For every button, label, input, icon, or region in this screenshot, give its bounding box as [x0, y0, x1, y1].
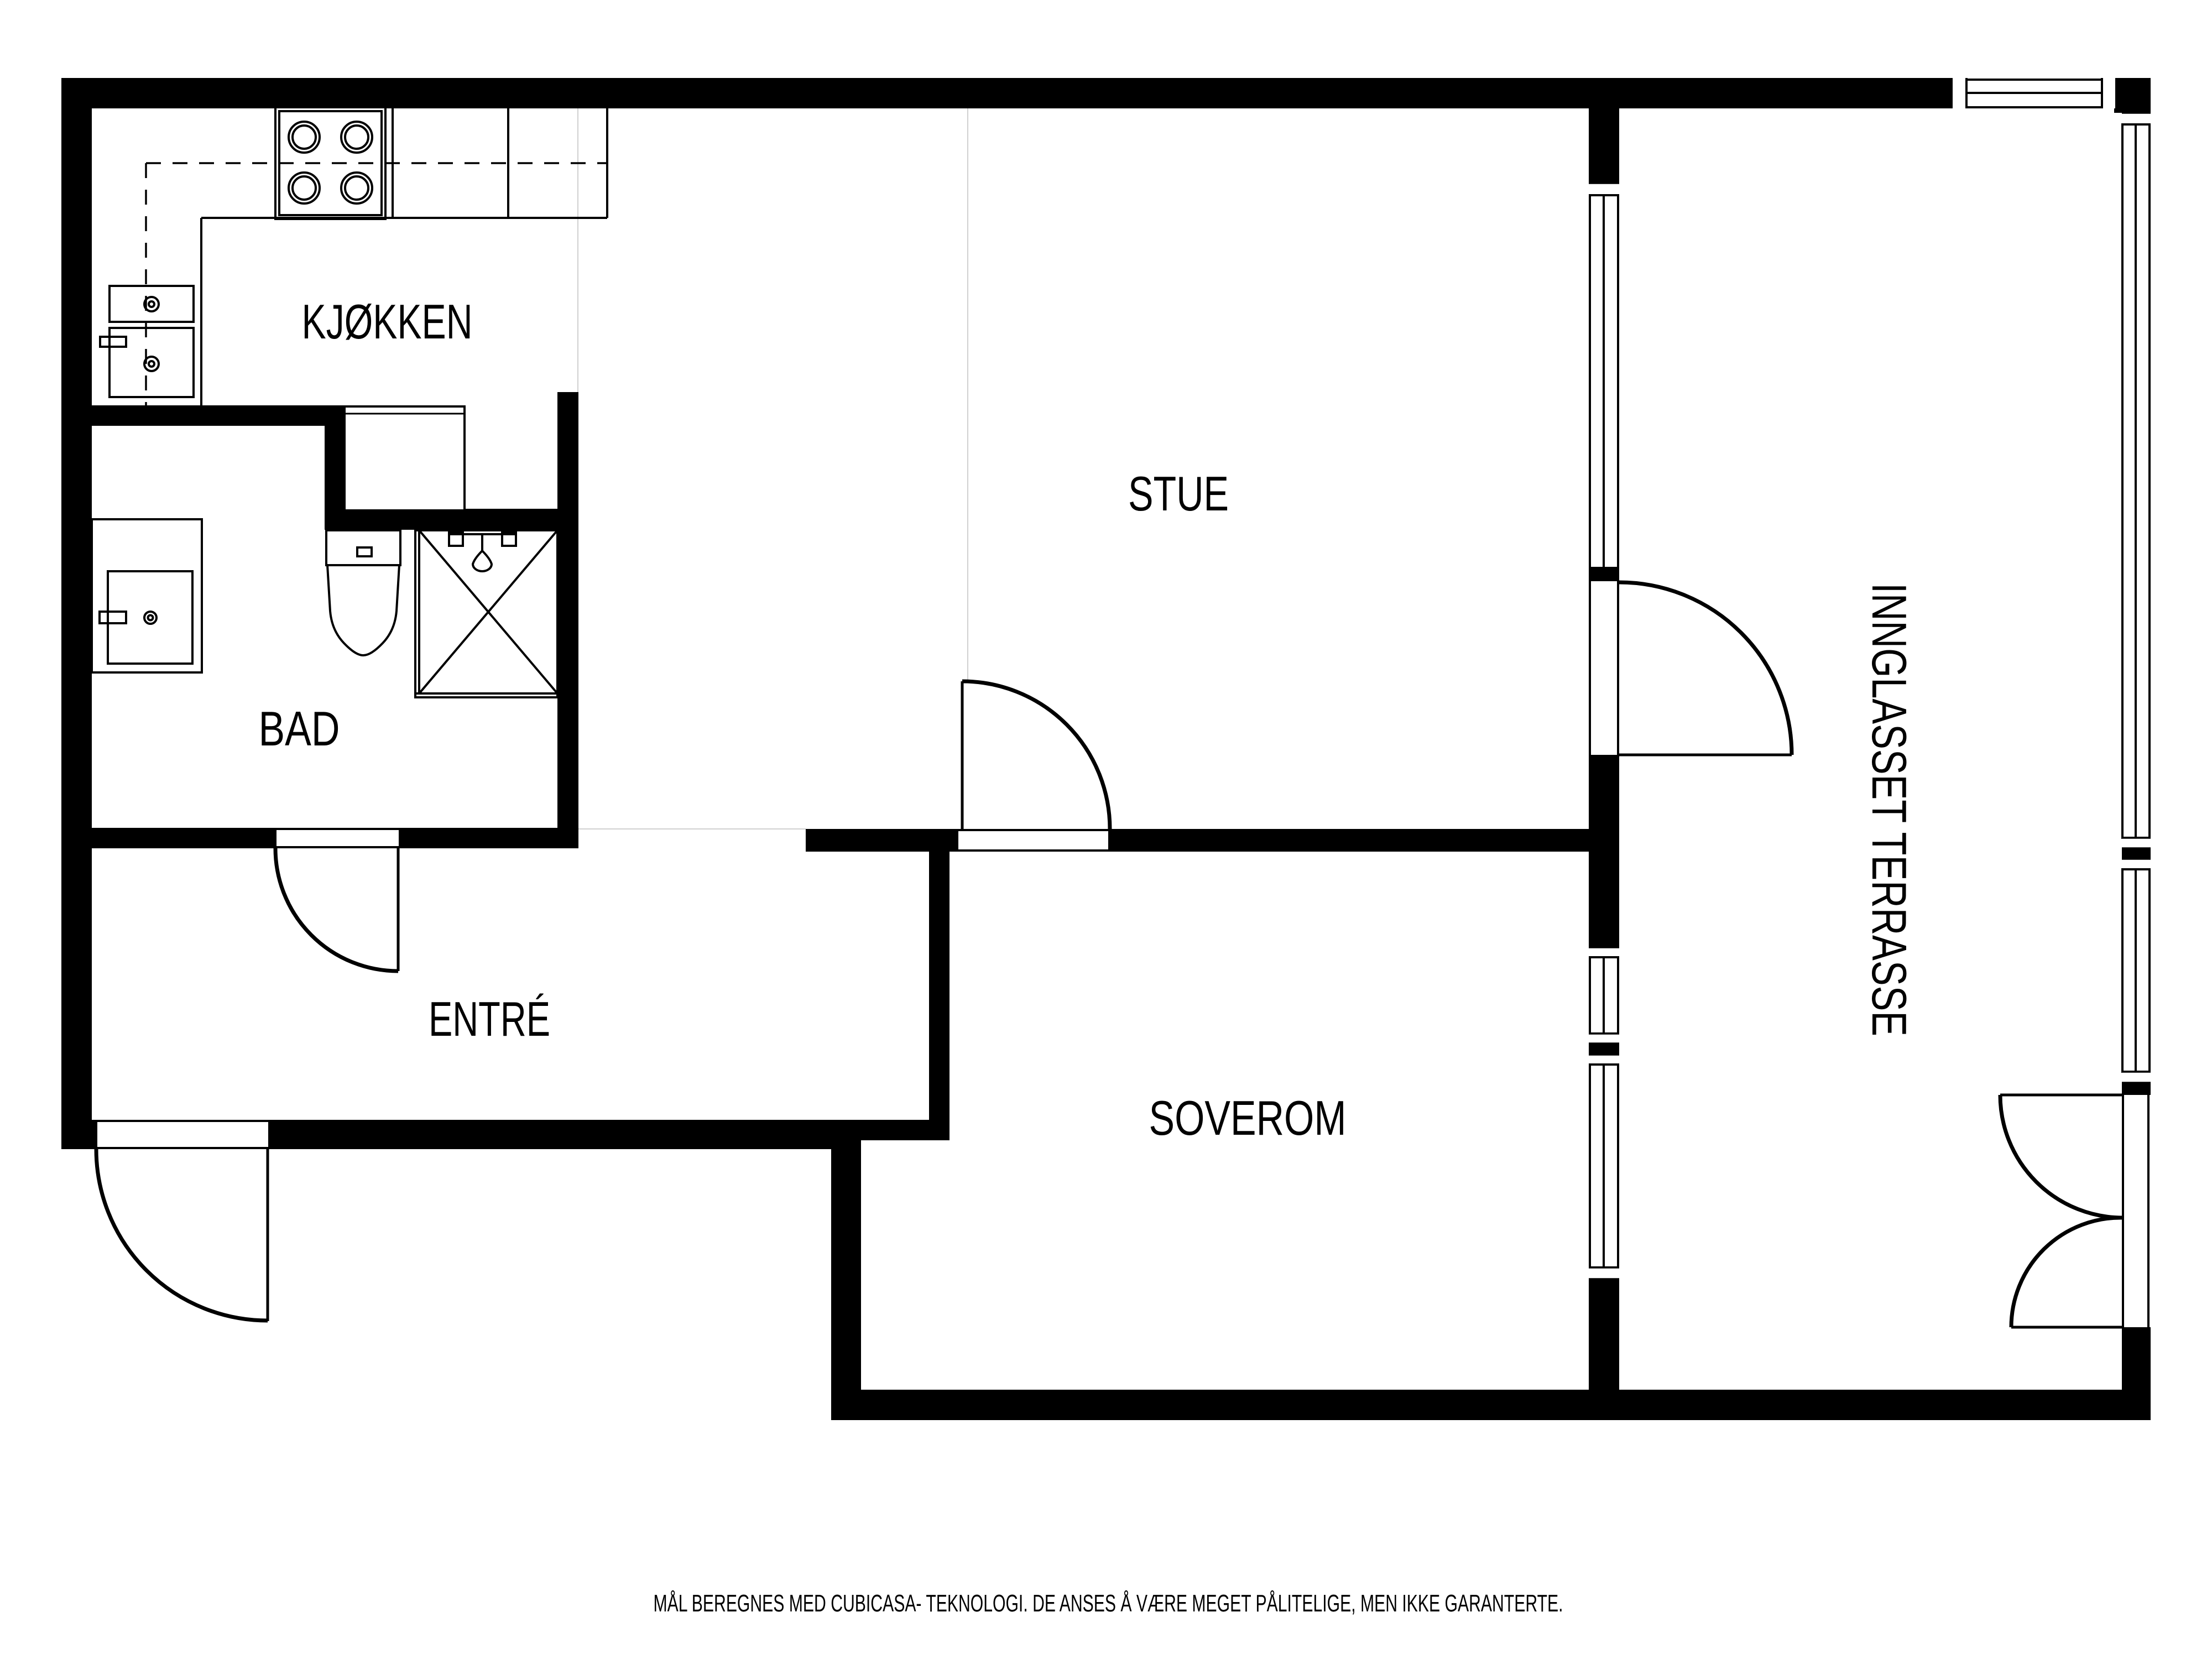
svg-text:MÅL BEREGNES MED CUBICASA- TEK: MÅL BEREGNES MED CUBICASA- TEKNOLOGI. DE…	[654, 1590, 1563, 1617]
svg-text:INNGLASSET TERRASSE: INNGLASSET TERRASSE	[1862, 583, 1917, 1036]
svg-text:SOVEROM: SOVEROM	[1149, 1091, 1347, 1145]
svg-text:ENTRÉ: ENTRÉ	[429, 992, 550, 1046]
svg-text:KJØKKEN: KJØKKEN	[302, 294, 473, 349]
svg-text:STUE: STUE	[1128, 466, 1229, 521]
svg-text:BAD: BAD	[259, 701, 340, 756]
